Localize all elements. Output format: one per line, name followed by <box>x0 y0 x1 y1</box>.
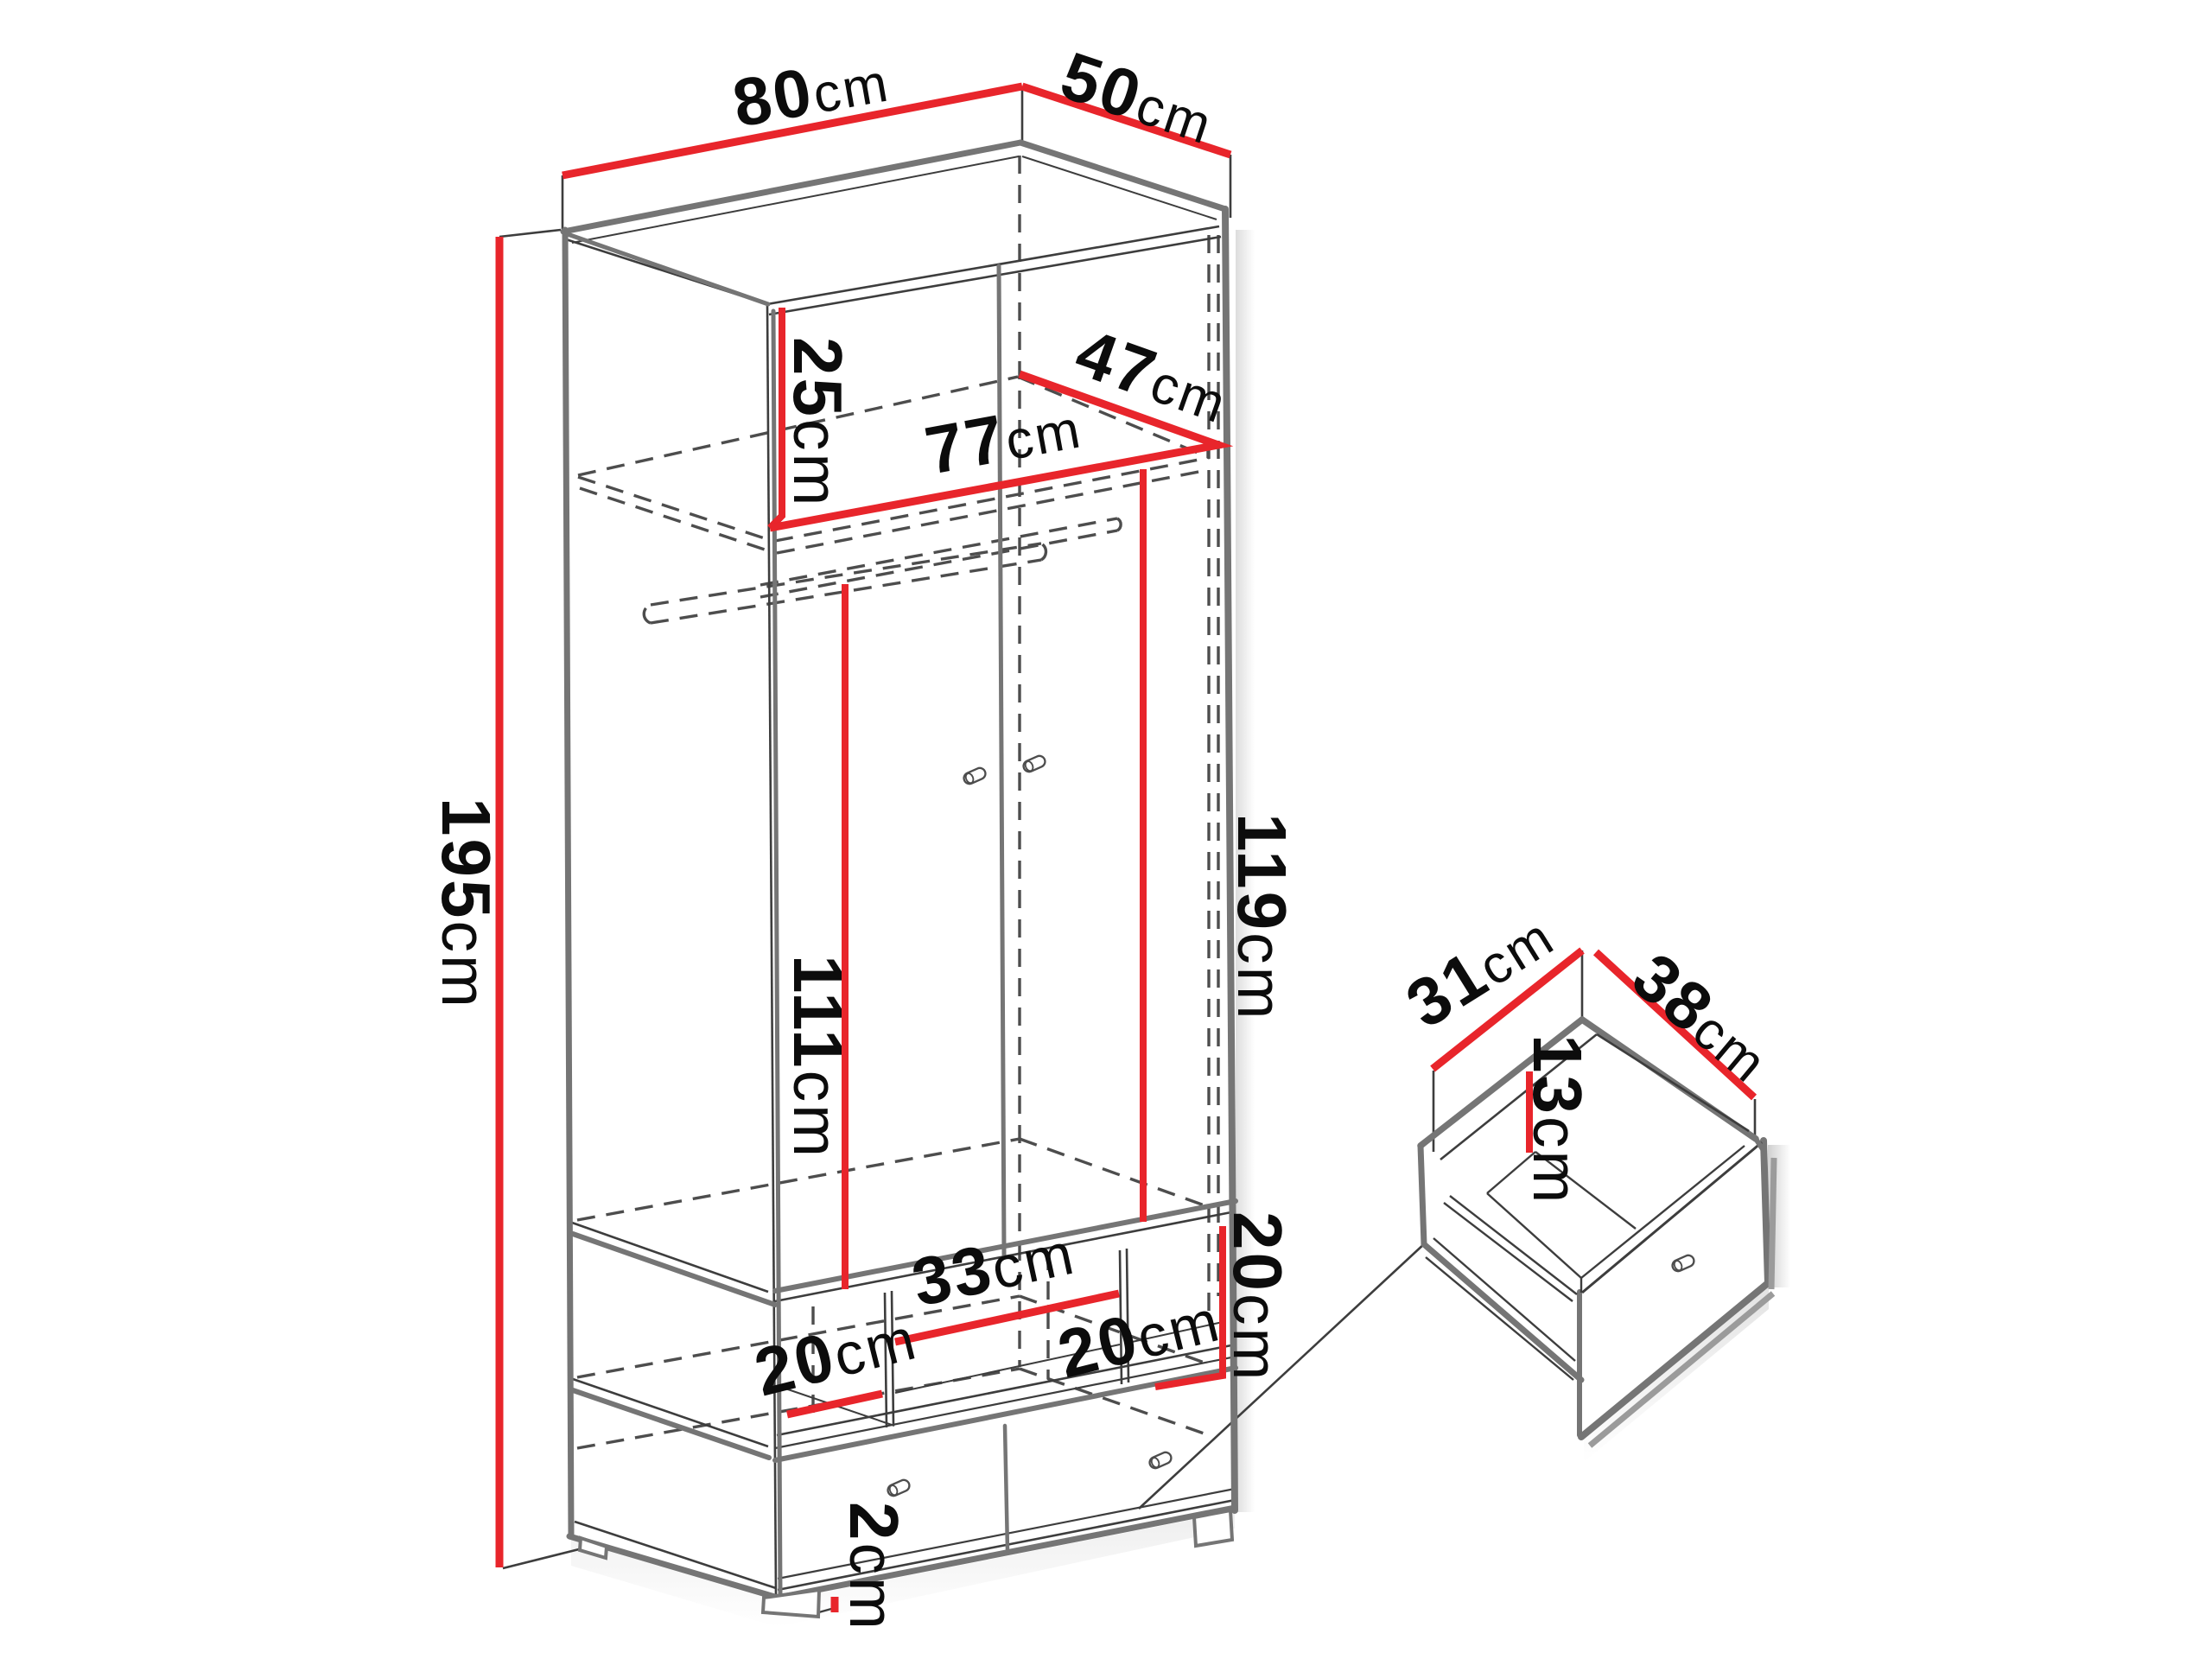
svg-text:2cm: 2cm <box>836 1502 912 1632</box>
svg-text:195cm: 195cm <box>428 798 505 1010</box>
svg-text:13cm: 13cm <box>1519 1034 1596 1205</box>
svg-text:25cm: 25cm <box>779 337 856 508</box>
svg-text:111cm: 111cm <box>779 955 856 1160</box>
svg-text:20cm: 20cm <box>1219 1211 1296 1382</box>
svg-text:119cm: 119cm <box>1224 813 1300 1021</box>
